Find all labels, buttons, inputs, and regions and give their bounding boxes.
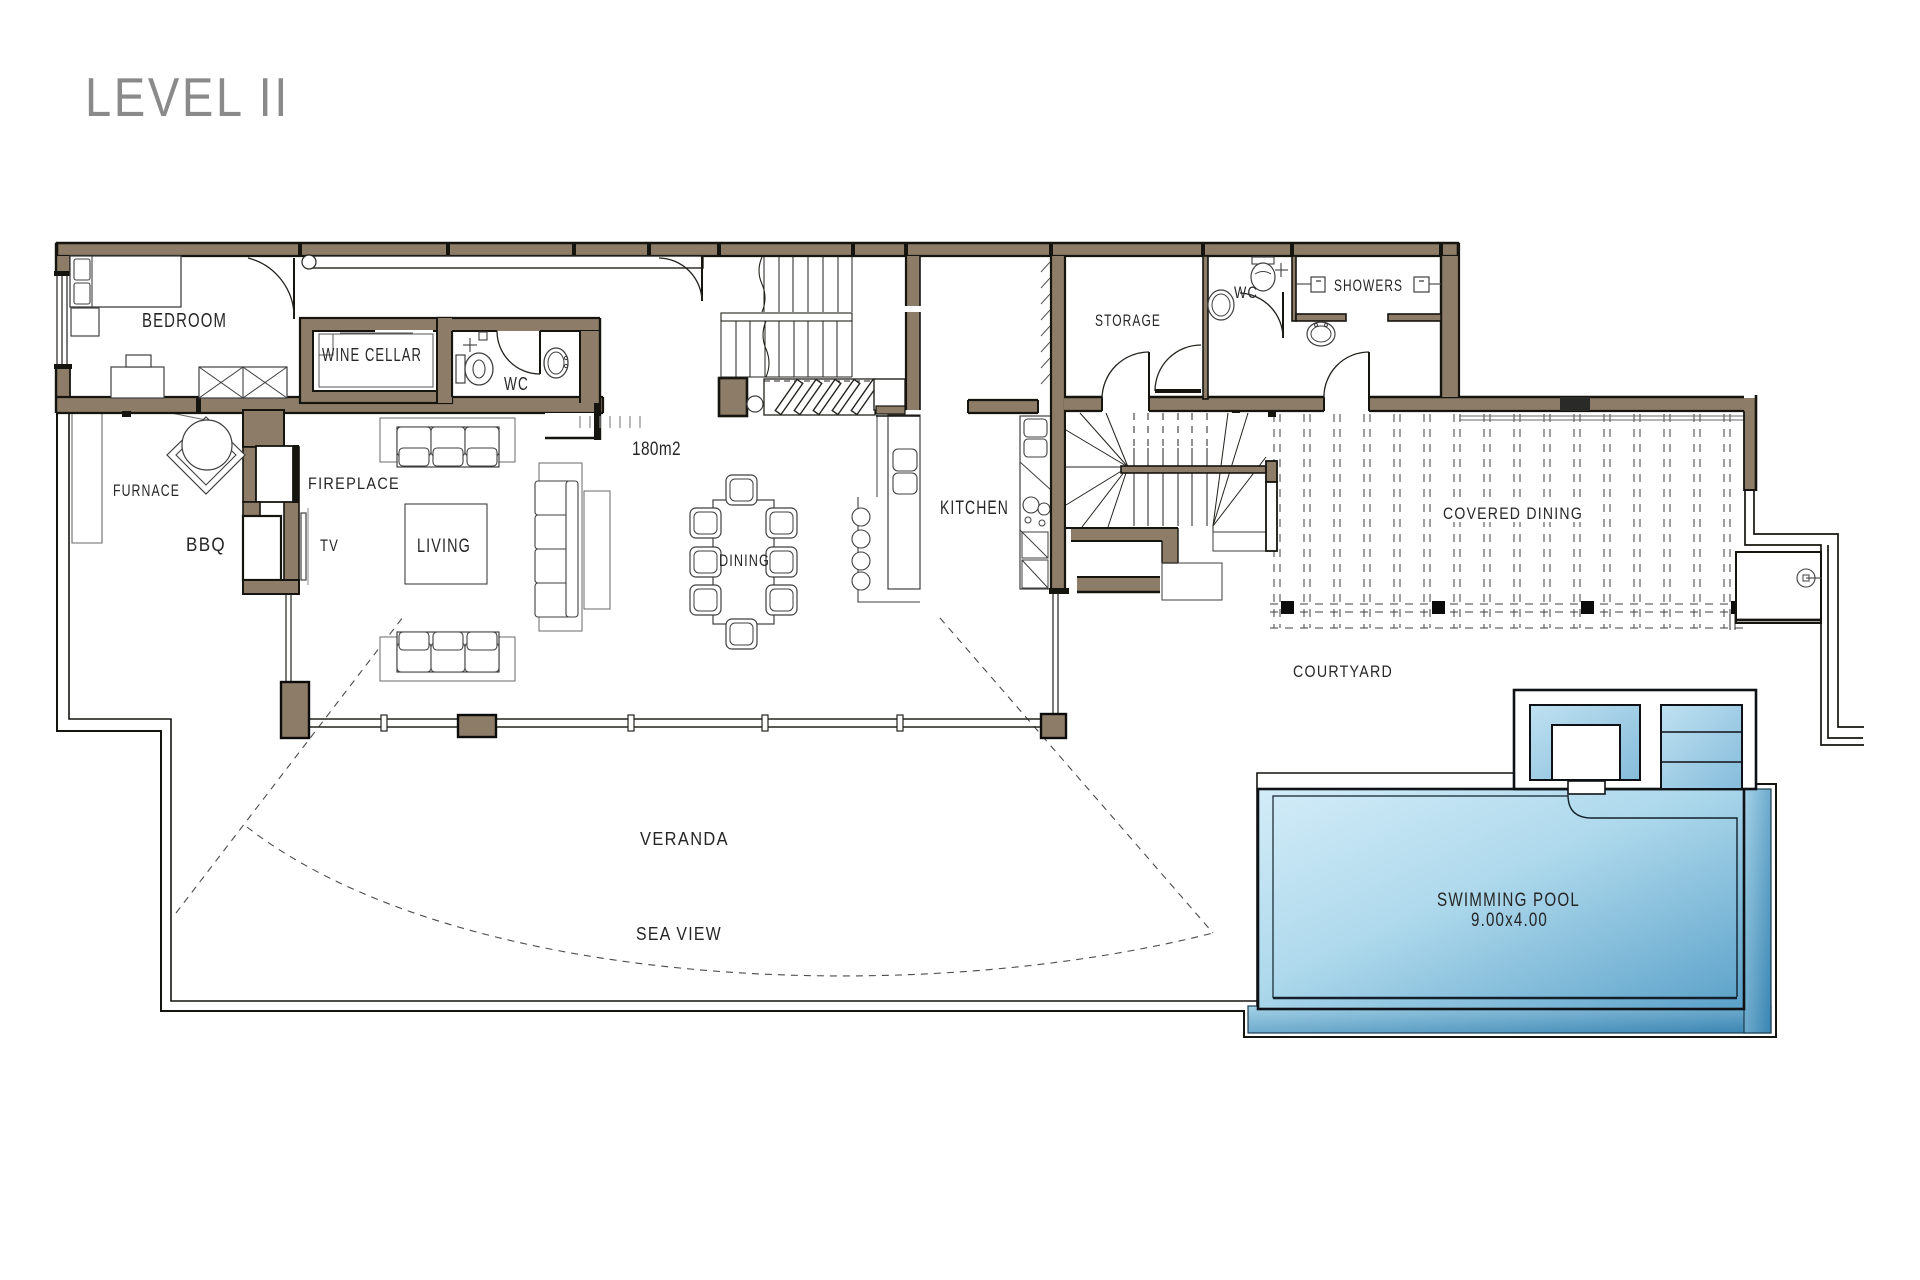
svg-text:WINE CELLAR: WINE CELLAR bbox=[322, 345, 422, 365]
svg-text:KITCHEN: KITCHEN bbox=[940, 498, 1009, 519]
svg-text:BBQ: BBQ bbox=[186, 535, 226, 556]
svg-text:DINING: DINING bbox=[719, 551, 770, 570]
svg-text:WC: WC bbox=[504, 374, 529, 394]
svg-text:SWIMMING POOL: SWIMMING POOL bbox=[1437, 890, 1580, 911]
svg-text:TV: TV bbox=[320, 536, 339, 555]
svg-text:COVERED DINING: COVERED DINING bbox=[1443, 504, 1583, 523]
svg-text:STORAGE: STORAGE bbox=[1095, 311, 1161, 330]
svg-text:LIVING: LIVING bbox=[417, 536, 471, 557]
svg-text:LEVEL II: LEVEL II bbox=[85, 66, 290, 128]
svg-text:SHOWERS: SHOWERS bbox=[1334, 276, 1403, 295]
svg-text:9.00x4.00: 9.00x4.00 bbox=[1471, 910, 1548, 931]
svg-text:WC: WC bbox=[1234, 283, 1258, 302]
svg-text:180m2: 180m2 bbox=[632, 439, 681, 460]
svg-text:COURTYARD: COURTYARD bbox=[1293, 662, 1393, 681]
svg-text:BEDROOM: BEDROOM bbox=[142, 310, 227, 332]
svg-text:VERANDA: VERANDA bbox=[640, 829, 729, 849]
svg-text:FURNACE: FURNACE bbox=[113, 481, 180, 500]
svg-text:SEA VIEW: SEA VIEW bbox=[636, 924, 722, 944]
svg-text:FIREPLACE: FIREPLACE bbox=[308, 474, 400, 493]
